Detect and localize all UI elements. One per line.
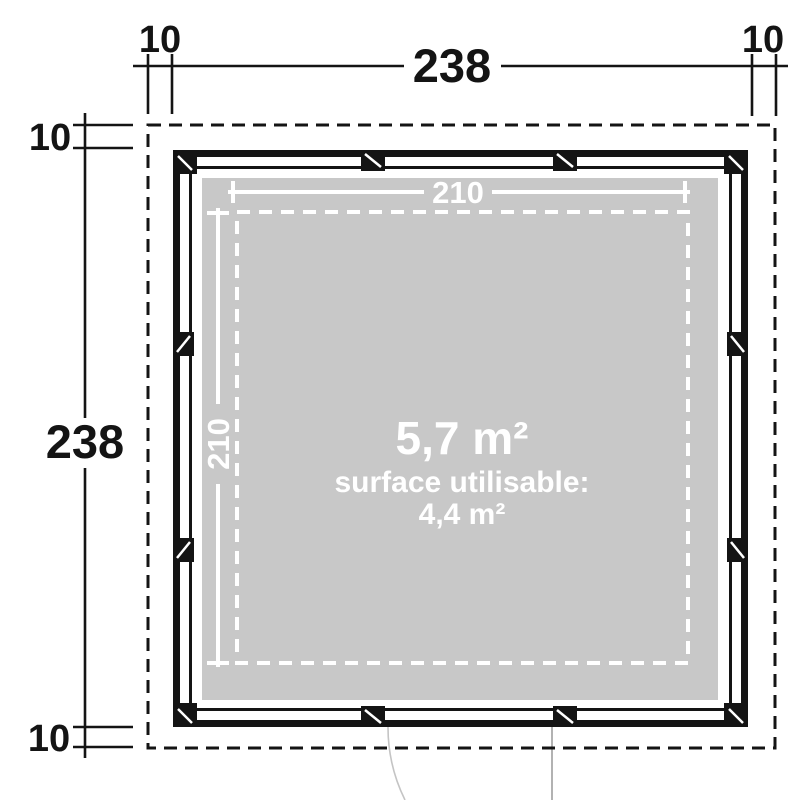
offset-left-top-label: 10 bbox=[29, 117, 71, 159]
inner-height-label: 210 bbox=[201, 418, 236, 470]
offset-top-left-label: 10 bbox=[139, 19, 181, 61]
usable-area-label: 4,4 m² bbox=[419, 498, 506, 531]
overall-width-label: 238 bbox=[413, 39, 491, 92]
door bbox=[388, 727, 552, 800]
inner-width-label: 210 bbox=[432, 175, 484, 210]
usable-caption-label: surface utilisable: bbox=[334, 466, 589, 499]
gross-area-label: 5,7 m² bbox=[396, 412, 529, 464]
offset-top-right-label: 10 bbox=[742, 19, 784, 61]
door-swing-arc bbox=[388, 727, 405, 800]
overall-height-label: 238 bbox=[46, 415, 124, 468]
left-dimension: 10 10 238 bbox=[28, 113, 133, 760]
offset-left-bottom-label: 10 bbox=[28, 718, 70, 760]
top-dimension: 10 10 238 bbox=[133, 19, 788, 116]
floorplan-diagram: 210 210 5,7 m² surface utilisable: 4,4 m… bbox=[0, 0, 800, 800]
floorplan-canvas: 210 210 5,7 m² surface utilisable: 4,4 m… bbox=[0, 0, 800, 800]
